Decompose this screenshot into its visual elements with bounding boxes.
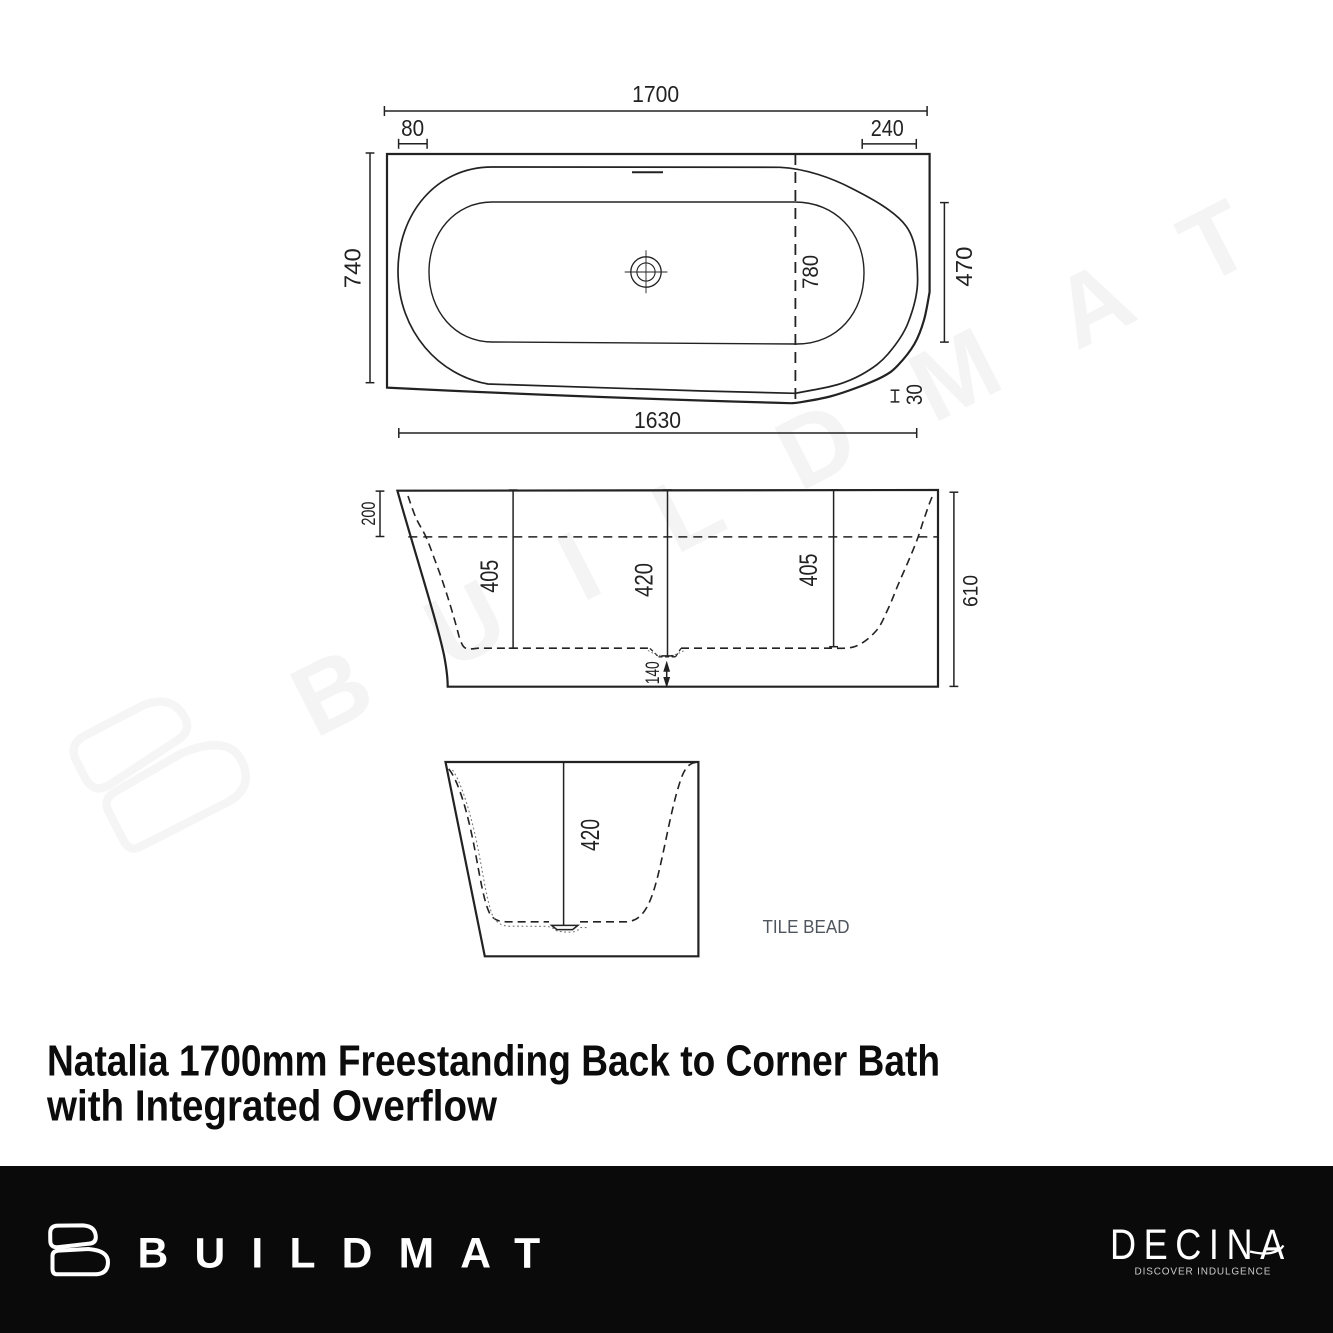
svg-text:Natalia 1700mm Freestanding Ba: Natalia 1700mm Freestanding Back to Corn… [47, 1037, 940, 1086]
svg-text:1630: 1630 [634, 407, 681, 433]
svg-text:610: 610 [960, 575, 983, 607]
svg-text:420: 420 [575, 819, 605, 851]
svg-text:740: 740 [340, 248, 366, 288]
svg-text:200: 200 [359, 502, 380, 526]
svg-text:DECINA: DECINA [1110, 1221, 1292, 1269]
svg-text:with Integrated Overflow: with Integrated Overflow [46, 1082, 498, 1131]
svg-text:780: 780 [798, 255, 823, 289]
svg-text:405: 405 [795, 554, 823, 587]
svg-text:80: 80 [401, 115, 424, 141]
svg-text:240: 240 [871, 115, 904, 141]
svg-text:DISCOVER INDULGENCE: DISCOVER INDULGENCE [1135, 1267, 1272, 1278]
svg-text:1700: 1700 [632, 81, 679, 107]
svg-text:140: 140 [643, 661, 664, 684]
svg-text:30: 30 [902, 384, 927, 405]
svg-text:TILE BEAD: TILE BEAD [763, 917, 850, 937]
svg-text:470: 470 [951, 247, 977, 287]
svg-text:BUILDMAT: BUILDMAT [138, 1230, 567, 1278]
svg-text:405: 405 [476, 560, 504, 593]
svg-text:420: 420 [631, 563, 659, 597]
